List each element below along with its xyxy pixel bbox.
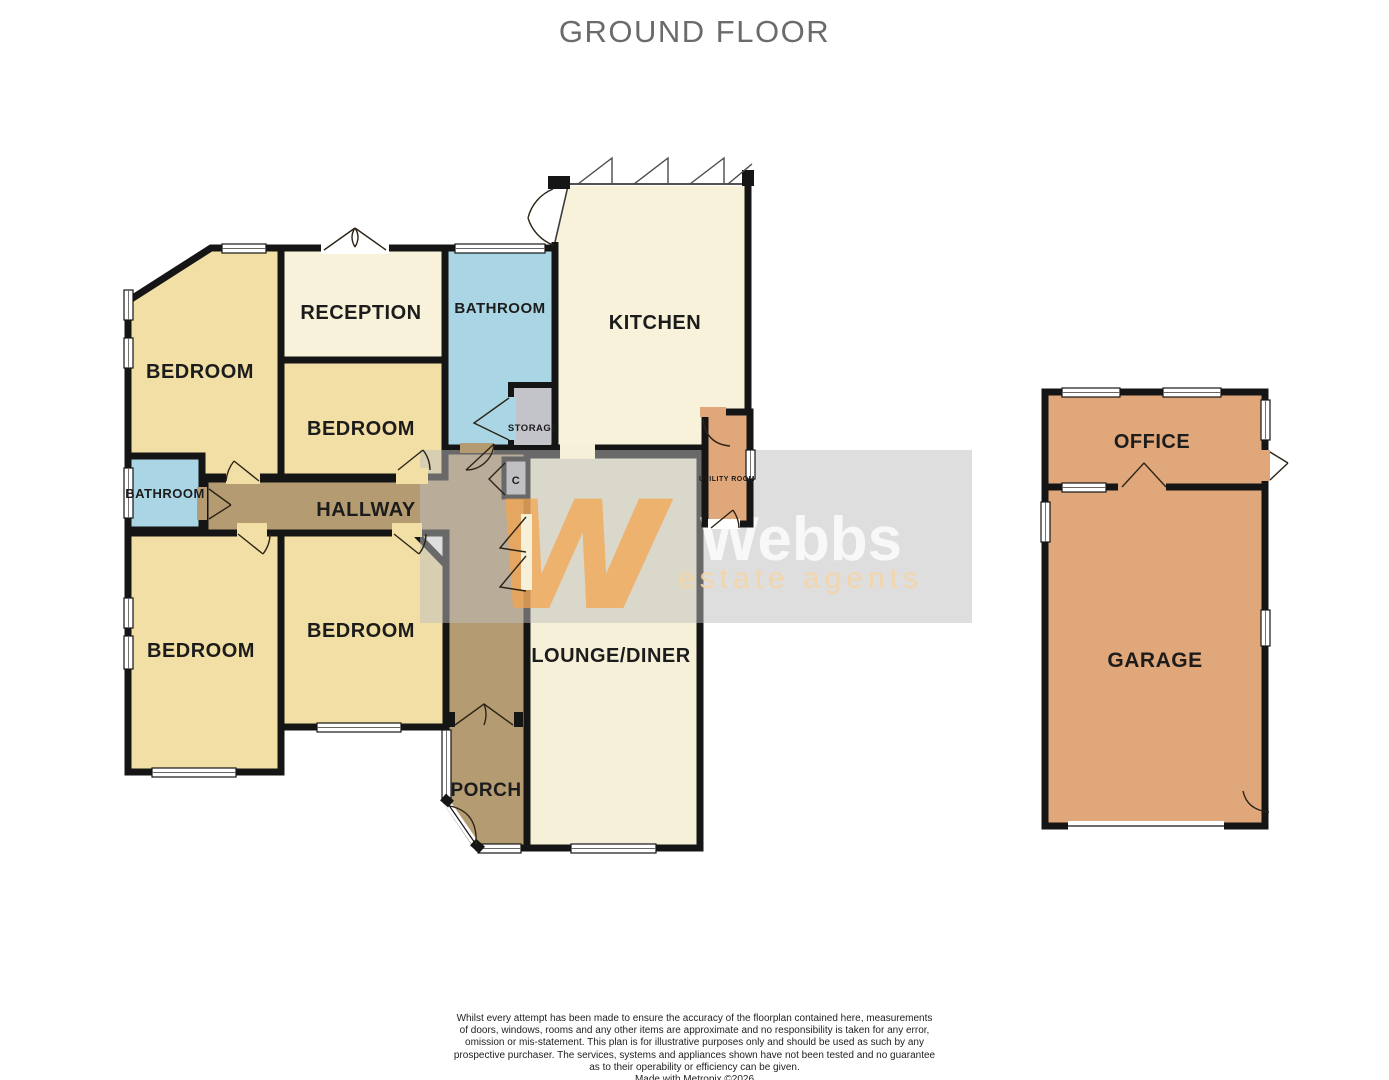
label-bedroom-top-left: BEDROOM: [146, 361, 254, 383]
label-kitchen: KITCHEN: [609, 312, 701, 334]
disclaimer-line: Whilst every attempt has been made to en…: [435, 1013, 955, 1025]
disclaimer-line: omission or mis-statement. This plan is …: [435, 1037, 955, 1049]
disclaimer-line: as to their operability or efficiency ca…: [435, 1062, 955, 1074]
garage-block: [1045, 392, 1265, 826]
watermark: w Webbs estate agents: [420, 423, 972, 656]
label-garage: GARAGE: [1107, 649, 1202, 672]
floorplan-page: GROUND FLOOR: [0, 0, 1389, 1080]
label-lounge: LOUNGE/DINER: [531, 645, 690, 667]
label-bathroom-left: BATHROOM: [125, 486, 205, 501]
label-reception: RECEPTION: [300, 302, 421, 324]
room-utility: [705, 412, 750, 524]
kitchen-wall-stub-right: [742, 170, 754, 186]
label-storage: STORAGE: [508, 423, 558, 434]
label-porch: PORCH: [450, 780, 521, 801]
label-office: OFFICE: [1114, 431, 1190, 453]
label-bedroom-middle: BEDROOM: [307, 418, 415, 440]
label-utility: UTILITY ROOM: [699, 476, 755, 483]
label-bedroom-bottom-left: BEDROOM: [147, 640, 255, 662]
watermark-tagline: estate agents: [678, 562, 923, 595]
room-utility-shape: [705, 412, 750, 524]
kitchen-wall-stub-left: [548, 176, 570, 189]
label-hallway: HALLWAY: [316, 499, 416, 521]
floor-plan-svg: w Webbs estate agents: [0, 0, 1389, 1080]
disclaimer-credit: Made with Metropix ©2026: [435, 1074, 955, 1080]
disclaimer-line: of doors, windows, rooms and any other i…: [435, 1025, 955, 1037]
disclaimer-line: prospective purchaser. The services, sys…: [435, 1050, 955, 1062]
label-bathroom-top: BATHROOM: [454, 300, 545, 317]
label-bedroom-bottom-middle: BEDROOM: [307, 620, 415, 642]
disclaimer: Whilst every attempt has been made to en…: [435, 1013, 955, 1080]
label-cupboard: C: [512, 475, 520, 487]
